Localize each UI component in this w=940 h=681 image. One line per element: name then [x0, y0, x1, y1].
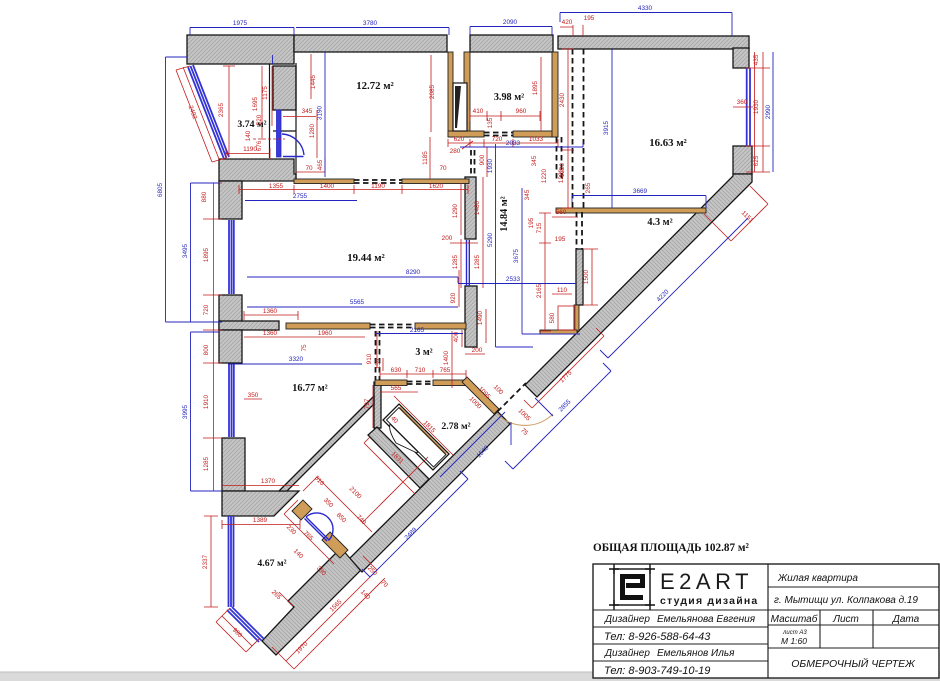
svg-text:Емельянова Евгения: Емельянова Евгения: [657, 614, 756, 625]
svg-text:880: 880: [201, 191, 208, 202]
svg-text:1895: 1895: [532, 80, 539, 95]
svg-text:Лист: Лист: [832, 614, 859, 625]
svg-text:1895: 1895: [203, 247, 210, 262]
svg-text:960: 960: [516, 108, 527, 115]
svg-text:г. Мытищи ул. Колпакова д.19: г. Мытищи ул. Колпакова д.19: [774, 595, 918, 606]
svg-text:ОБЩАЯ ПЛОЩАДЬ 102.87 м²: ОБЩАЯ ПЛОЩАДЬ 102.87 м²: [593, 542, 750, 554]
svg-text:1285: 1285: [203, 456, 210, 471]
svg-text:1490: 1490: [477, 310, 484, 325]
svg-text:1285: 1285: [474, 254, 481, 269]
svg-text:1500: 1500: [583, 269, 590, 284]
svg-text:135: 135: [487, 117, 494, 128]
svg-text:4.67 м²: 4.67 м²: [257, 558, 286, 569]
svg-text:676: 676: [256, 140, 263, 151]
svg-text:4330: 4330: [638, 5, 653, 12]
svg-text:1930: 1930: [487, 158, 494, 173]
svg-text:420: 420: [562, 19, 573, 26]
svg-text:2365: 2365: [218, 102, 225, 117]
svg-text:920: 920: [450, 292, 457, 303]
svg-text:900: 900: [479, 154, 486, 165]
svg-text:1220: 1220: [558, 168, 565, 183]
svg-text:Емельянов Илья: Емельянов Илья: [657, 648, 735, 659]
svg-text:720: 720: [492, 136, 503, 143]
svg-text:Жилая квартира: Жилая квартира: [777, 573, 858, 584]
svg-text:360: 360: [737, 99, 748, 106]
svg-text:1190: 1190: [243, 146, 257, 153]
svg-text:200: 200: [472, 347, 483, 354]
svg-text:70: 70: [439, 165, 447, 172]
svg-text:3.98 м²: 3.98 м²: [494, 92, 524, 103]
svg-text:1445: 1445: [310, 74, 317, 89]
svg-text:1960: 1960: [318, 330, 333, 337]
svg-text:465: 465: [317, 159, 324, 170]
svg-text:Дата: Дата: [892, 614, 920, 625]
svg-text:1280: 1280: [309, 123, 316, 138]
svg-text:1190: 1190: [371, 183, 385, 190]
svg-text:350: 350: [248, 392, 259, 399]
svg-text:280: 280: [450, 148, 461, 155]
svg-text:1930: 1930: [753, 99, 760, 114]
svg-text:1400: 1400: [320, 183, 335, 190]
svg-text:140: 140: [245, 130, 252, 141]
svg-text:195: 195: [528, 217, 535, 228]
svg-text:19.44 м²: 19.44 м²: [347, 252, 385, 264]
svg-text:Масштаб: Масштаб: [771, 613, 818, 625]
svg-text:715: 715: [536, 222, 543, 233]
svg-text:435: 435: [753, 54, 760, 65]
svg-text:2085: 2085: [429, 84, 436, 99]
svg-text:625: 625: [753, 155, 760, 166]
svg-text:14.84 м²: 14.84 м²: [499, 196, 510, 231]
svg-text:Тел: 8-926-588-64-43: Тел: 8-926-588-64-43: [604, 631, 711, 643]
svg-text:1389: 1389: [253, 517, 268, 524]
svg-text:720: 720: [203, 304, 210, 315]
svg-text:110: 110: [557, 287, 568, 294]
svg-text:4.3 м²: 4.3 м²: [647, 217, 672, 228]
svg-text:1185: 1185: [422, 151, 429, 165]
svg-text:6805: 6805: [157, 182, 164, 197]
svg-text:Дизайнер: Дизайнер: [604, 648, 650, 659]
svg-text:410: 410: [473, 108, 484, 115]
svg-text:1400: 1400: [443, 350, 450, 365]
svg-text:1360: 1360: [263, 308, 278, 315]
svg-text:2090: 2090: [503, 19, 518, 26]
svg-text:E2ART: E2ART: [660, 569, 753, 594]
svg-text:1975: 1975: [233, 20, 248, 27]
svg-text:2533: 2533: [506, 276, 521, 283]
svg-text:1370: 1370: [261, 478, 276, 485]
svg-text:3995: 3995: [182, 404, 189, 419]
svg-text:2430: 2430: [559, 92, 566, 107]
svg-text:3669: 3669: [633, 188, 648, 195]
svg-text:2755: 2755: [293, 193, 308, 200]
svg-text:70: 70: [305, 165, 313, 172]
svg-text:студия дизайна: студия дизайна: [660, 595, 758, 607]
svg-text:75: 75: [301, 344, 308, 352]
svg-text:8290: 8290: [406, 269, 421, 276]
svg-text:265: 265: [585, 182, 592, 193]
svg-text:1480: 1480: [474, 200, 481, 215]
svg-text:195: 195: [584, 15, 595, 22]
svg-text:1220: 1220: [541, 168, 548, 183]
svg-text:1290: 1290: [452, 203, 459, 218]
svg-text:630: 630: [391, 367, 402, 374]
svg-text:2165: 2165: [536, 283, 543, 298]
svg-text:1910: 1910: [203, 394, 210, 409]
svg-text:2990: 2990: [765, 104, 772, 119]
svg-text:1033: 1033: [529, 136, 544, 143]
svg-text:3320: 3320: [289, 356, 304, 363]
svg-text:400: 400: [453, 331, 460, 342]
svg-text:2.78 м²: 2.78 м²: [441, 421, 470, 432]
svg-text:620: 620: [454, 136, 465, 143]
svg-text:16.77 м²: 16.77 м²: [292, 383, 327, 394]
svg-text:200: 200: [442, 235, 453, 242]
svg-text:3675: 3675: [513, 248, 520, 263]
svg-text:Дизайнер: Дизайнер: [604, 614, 650, 625]
svg-text:155: 155: [375, 358, 382, 369]
svg-text:580: 580: [549, 312, 556, 323]
svg-text:3 м²: 3 м²: [415, 347, 432, 358]
svg-text:1285: 1285: [452, 254, 459, 269]
svg-text:1360: 1360: [263, 330, 278, 337]
svg-text:5565: 5565: [350, 299, 365, 306]
svg-text:195: 195: [555, 236, 566, 243]
svg-text:800: 800: [203, 344, 210, 355]
svg-text:765: 765: [440, 367, 451, 374]
svg-text:3.74 м²: 3.74 м²: [237, 119, 266, 130]
svg-text:16.63 м²: 16.63 м²: [649, 137, 687, 149]
svg-text:1695: 1695: [252, 96, 259, 111]
svg-text:12.72 м²: 12.72 м²: [356, 80, 394, 92]
svg-text:345: 345: [531, 155, 538, 166]
svg-text:5290: 5290: [487, 232, 494, 247]
svg-text:1620: 1620: [429, 183, 444, 190]
svg-text:М 1:60: М 1:60: [781, 636, 807, 646]
svg-text:345: 345: [302, 108, 313, 115]
svg-text:2033: 2033: [506, 140, 521, 147]
svg-text:2337: 2337: [202, 554, 209, 569]
svg-text:560: 560: [556, 209, 567, 216]
svg-text:2165: 2165: [410, 327, 425, 334]
svg-text:1355: 1355: [269, 183, 284, 190]
svg-text:345: 345: [524, 189, 531, 200]
svg-text:3190: 3190: [317, 105, 324, 120]
svg-text:Тел: 8-903-749-10-19: Тел: 8-903-749-10-19: [604, 665, 710, 677]
svg-text:3915: 3915: [603, 120, 610, 135]
svg-text:3780: 3780: [363, 20, 378, 27]
svg-text:565: 565: [391, 385, 402, 392]
svg-text:797: 797: [364, 398, 371, 409]
svg-text:3495: 3495: [182, 243, 189, 258]
svg-text:910: 910: [366, 353, 373, 364]
svg-text:710: 710: [415, 367, 426, 374]
svg-text:1175: 1175: [262, 86, 269, 100]
svg-text:ОБМЕРОЧНЫЙ ЧЕРТЕЖ: ОБМЕРОЧНЫЙ ЧЕРТЕЖ: [791, 657, 916, 670]
